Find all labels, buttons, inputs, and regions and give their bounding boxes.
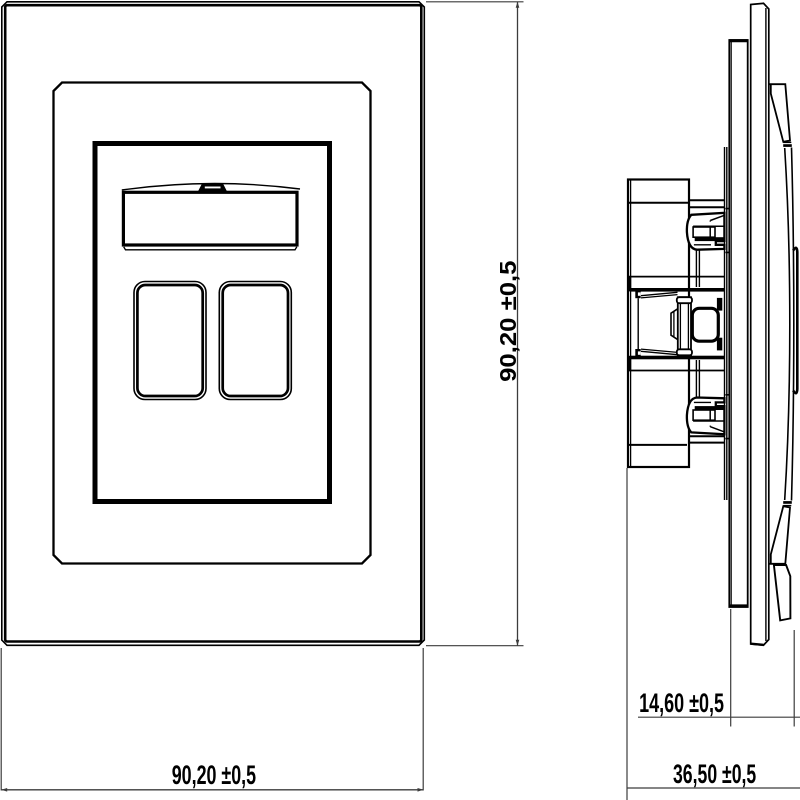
- svg-text:36,50 ±0,5: 36,50 ±0,5: [673, 759, 756, 788]
- svg-text:90,20 ±0,5: 90,20 ±0,5: [172, 761, 256, 790]
- svg-text:90,20 ±0,5: 90,20 ±0,5: [496, 261, 521, 382]
- svg-text:14,60 ±0,5: 14,60 ±0,5: [639, 689, 724, 718]
